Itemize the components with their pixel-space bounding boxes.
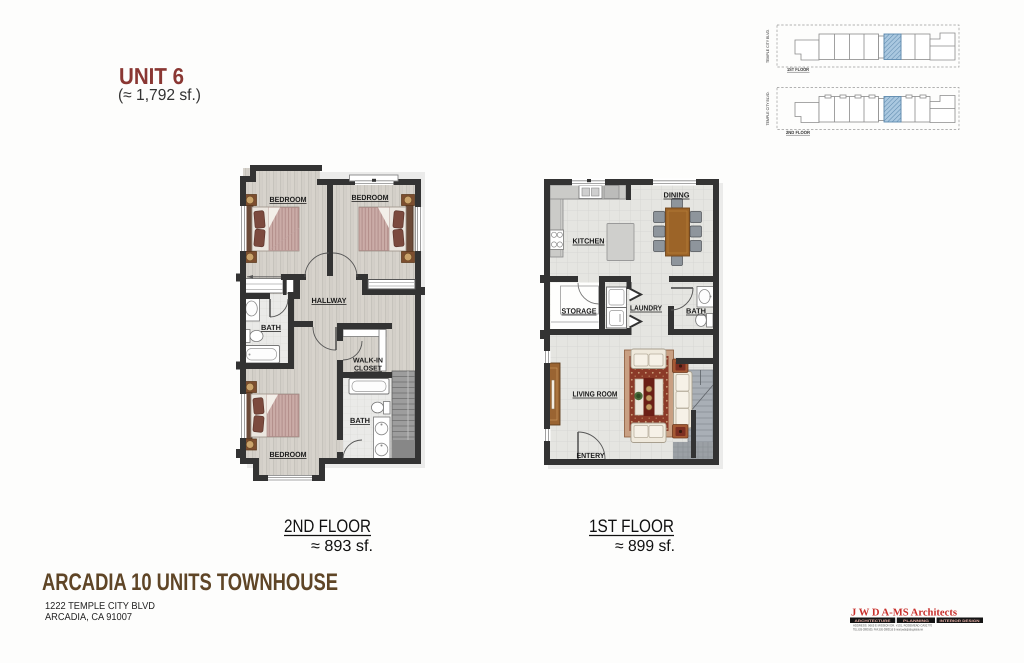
svg-text:BATH: BATH bbox=[686, 307, 706, 316]
svg-text:TEMPLE CITY BLVD.: TEMPLE CITY BLVD. bbox=[766, 92, 770, 126]
svg-text:INTERIOR DESIGN: INTERIOR DESIGN bbox=[940, 619, 981, 623]
svg-text:PLANNING: PLANNING bbox=[903, 619, 930, 623]
svg-text:LIVING ROOM: LIVING ROOM bbox=[573, 390, 618, 399]
svg-text:LAUNDRY: LAUNDRY bbox=[630, 304, 662, 313]
svg-text:J W D A-MS Architects: J W D A-MS Architects bbox=[851, 608, 957, 619]
svg-text:≈ 893 sf.: ≈ 893 sf. bbox=[311, 538, 373, 555]
svg-text:BATH: BATH bbox=[261, 323, 281, 332]
svg-text:1ST FLOOR: 1ST FLOOR bbox=[787, 67, 810, 72]
svg-text:UNIT 6: UNIT 6 bbox=[119, 63, 184, 89]
svg-text:2ND FLOOR: 2ND FLOOR bbox=[284, 516, 371, 536]
svg-text:HALLWAY: HALLWAY bbox=[312, 296, 347, 305]
svg-text:DINING: DINING bbox=[664, 191, 690, 200]
svg-text:2ND FLOOR: 2ND FLOOR bbox=[786, 130, 811, 135]
svg-text:BEDROOM: BEDROOM bbox=[270, 450, 307, 459]
svg-text:STORAGE: STORAGE bbox=[562, 307, 597, 316]
svg-text:TEL:626-2880100, FAX:626-28801: TEL:626-2880100, FAX:626-2880116 E-mail:… bbox=[853, 628, 923, 632]
svg-text:ARCHITECTURE: ARCHITECTURE bbox=[855, 619, 892, 623]
svg-text:ARCADIA 10 UNITS TOWNHOUSE: ARCADIA 10 UNITS TOWNHOUSE bbox=[42, 569, 338, 596]
svg-text:TEMPLE CITY BLVD.: TEMPLE CITY BLVD. bbox=[766, 29, 770, 63]
svg-text:(≈ 1,792 sf.): (≈ 1,792 sf.) bbox=[118, 87, 201, 104]
svg-text:BEDROOM: BEDROOM bbox=[352, 193, 389, 202]
svg-text:≈ 899 sf.: ≈ 899 sf. bbox=[615, 538, 675, 555]
svg-text:BATH: BATH bbox=[350, 416, 370, 425]
svg-text:ARCADIA, CA 91007: ARCADIA, CA 91007 bbox=[45, 612, 132, 623]
svg-text:BEDROOM: BEDROOM bbox=[270, 195, 307, 204]
svg-text:WALK-IN: WALK-IN bbox=[353, 358, 383, 365]
svg-text:1222 TEMPLE CITY BLVD: 1222 TEMPLE CITY BLVD bbox=[45, 601, 155, 612]
svg-text:1ST FLOOR: 1ST FLOOR bbox=[589, 516, 674, 536]
svg-text:ENTERY: ENTERY bbox=[577, 451, 605, 460]
svg-text:KITCHEN: KITCHEN bbox=[573, 237, 605, 246]
